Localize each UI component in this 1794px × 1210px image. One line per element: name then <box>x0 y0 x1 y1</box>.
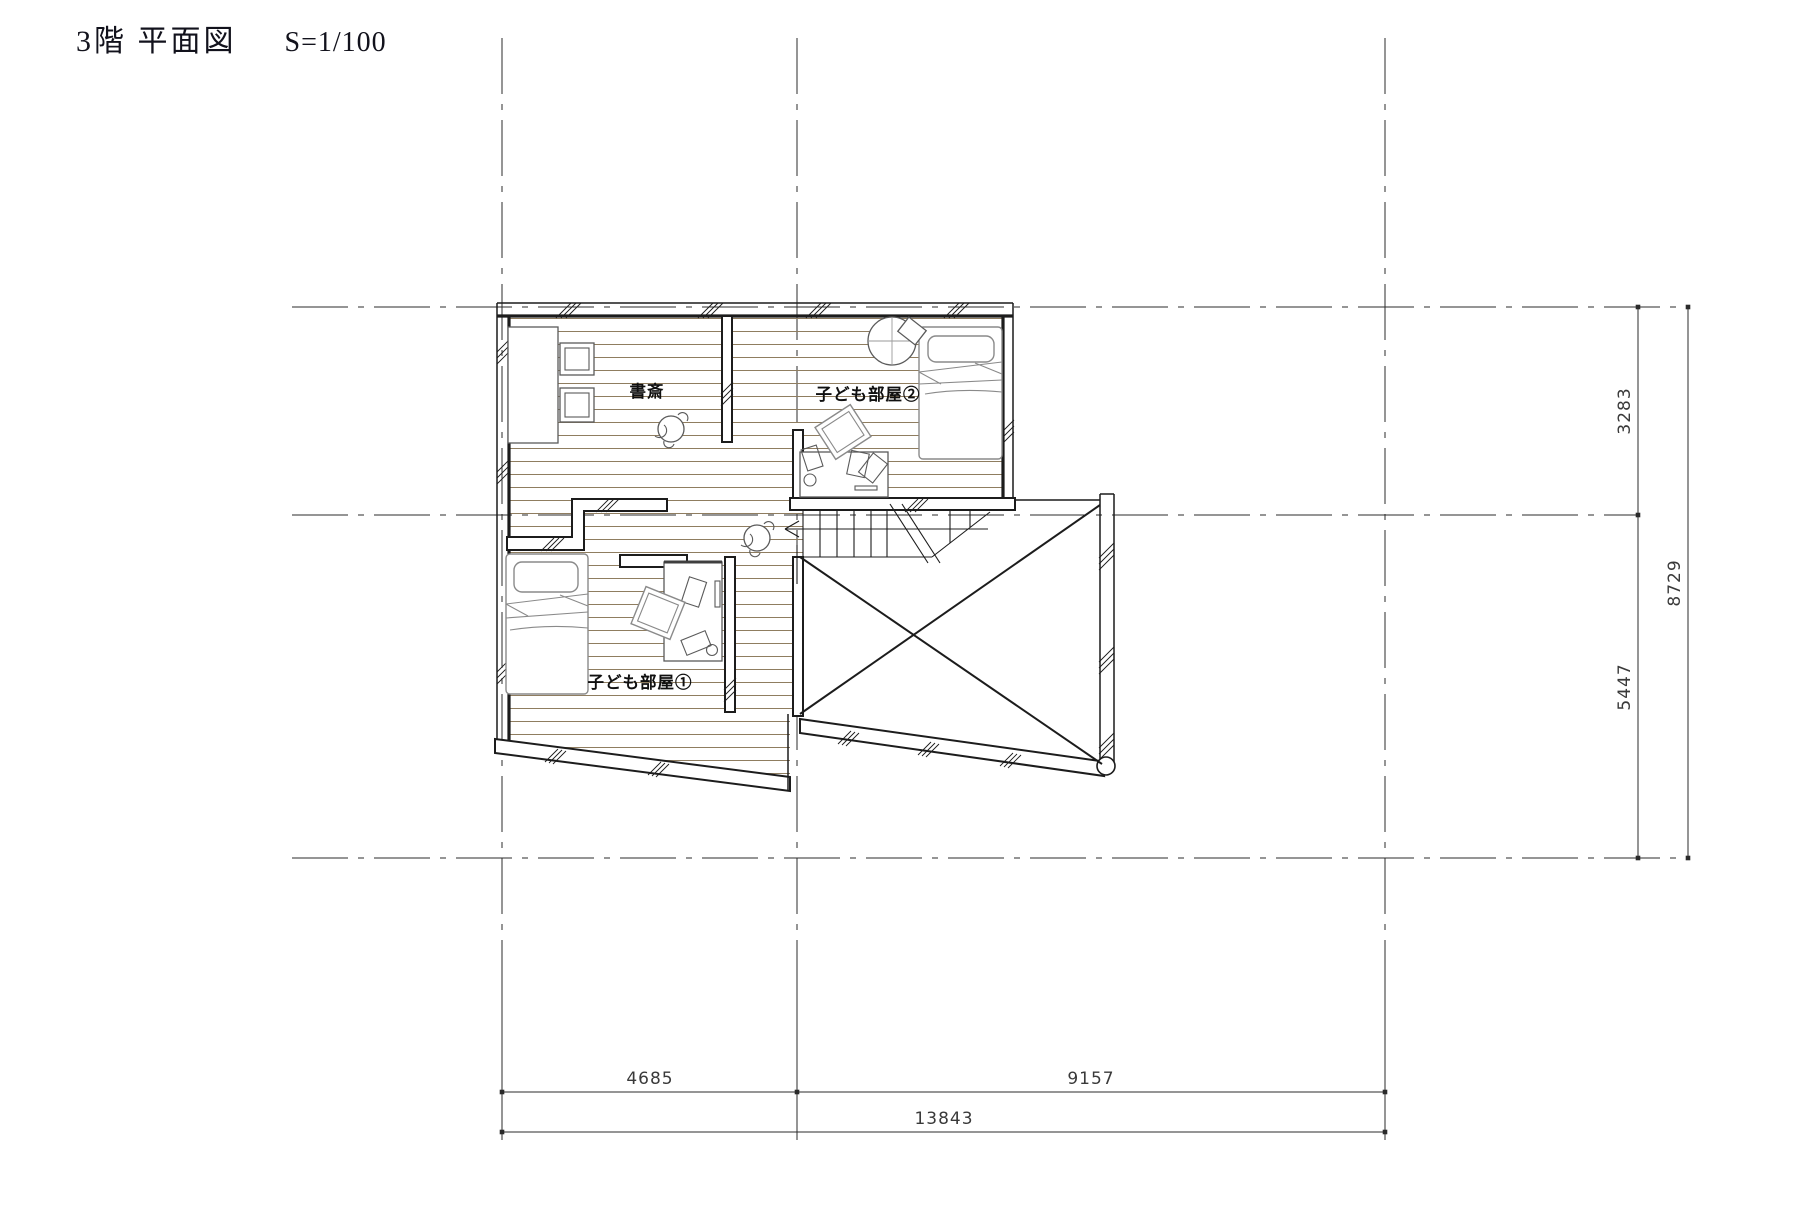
study-chair-2 <box>560 388 594 422</box>
wall-room1-right <box>725 557 735 712</box>
dim-right-segment-bottom: 5447 <box>1615 663 1635 710</box>
study-chair-1 <box>560 343 594 375</box>
dim-bottom-segment-right: 9157 <box>1067 1069 1114 1089</box>
slanted-wall-bottom-right <box>800 719 1104 776</box>
dimension-bottom: 4685 9157 13843 <box>500 948 1388 1140</box>
wall-void-left <box>793 557 803 716</box>
study-counter-desk <box>508 327 558 443</box>
wall-study-partition <box>722 316 732 442</box>
dim-bottom-total: 13843 <box>914 1109 973 1129</box>
stairs <box>803 504 990 563</box>
floor-plan-page: 3階 平面図S=1/100 <box>0 0 1794 1210</box>
dim-bottom-segment-left: 4685 <box>626 1069 673 1089</box>
room-label-kids-room-1: 子ども部屋① <box>588 672 693 692</box>
bed-symbol-kids-room-2 <box>919 327 1002 459</box>
floor-plan-svg: 書斎 子ども部屋② 子ども部屋① 3283 5447 8729 <box>0 0 1794 1210</box>
room-label-kids-room-2: 子ども部屋② <box>816 384 921 404</box>
dimension-right: 3283 5447 8729 <box>1615 305 1690 861</box>
room-label-study: 書斎 <box>630 381 665 401</box>
dim-right-segment-top: 3283 <box>1615 387 1635 434</box>
bed-symbol-kids-room-1 <box>506 554 588 694</box>
dim-right-total: 8729 <box>1665 559 1685 606</box>
